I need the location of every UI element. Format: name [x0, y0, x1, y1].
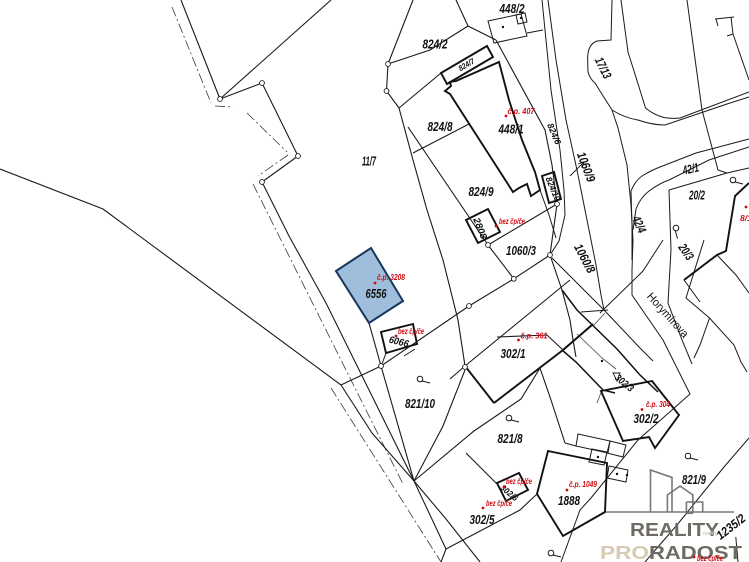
svg-text:č.p. 407: č.p. 407 — [508, 106, 536, 116]
svg-text:č.p. 3208: č.p. 3208 — [377, 272, 405, 282]
svg-text:bez čp/če: bez čp/če — [398, 326, 424, 336]
svg-text:RADOST: RADOST — [649, 542, 743, 562]
svg-text:821/9: 821/9 — [682, 473, 706, 487]
svg-text:302/5: 302/5 — [470, 513, 496, 527]
svg-text:302/1: 302/1 — [501, 347, 526, 361]
svg-text:8/1: 8/1 — [740, 213, 749, 223]
svg-text:bez čp/če: bez čp/če — [499, 216, 525, 226]
svg-text:č.p. 1049: č.p. 1049 — [569, 479, 597, 489]
svg-text:824/2: 824/2 — [423, 38, 448, 52]
svg-text:448/2: 448/2 — [499, 2, 525, 16]
svg-text:1888: 1888 — [558, 494, 580, 508]
svg-text:bez čp/če: bez čp/če — [486, 498, 512, 508]
svg-text:302/2: 302/2 — [634, 412, 659, 426]
svg-text:824/8: 824/8 — [428, 120, 453, 134]
svg-text:bez čp/če: bez čp/če — [506, 476, 532, 486]
svg-text:824/9: 824/9 — [469, 185, 494, 199]
svg-text:č.p. 361: č.p. 361 — [521, 331, 548, 341]
svg-text:448/1: 448/1 — [498, 123, 524, 137]
svg-text:821/8: 821/8 — [498, 432, 523, 446]
svg-text:6556: 6556 — [366, 287, 388, 301]
svg-text:PRO: PRO — [600, 542, 649, 562]
svg-text:821/10: 821/10 — [405, 397, 435, 411]
svg-text:20/2: 20/2 — [688, 189, 705, 203]
svg-text:bez čp/če: bez čp/če — [697, 553, 723, 562]
svg-text:č.p. 304: č.p. 304 — [646, 399, 670, 409]
svg-text:11/7: 11/7 — [362, 154, 377, 168]
svg-text:1060/3: 1060/3 — [506, 244, 536, 258]
